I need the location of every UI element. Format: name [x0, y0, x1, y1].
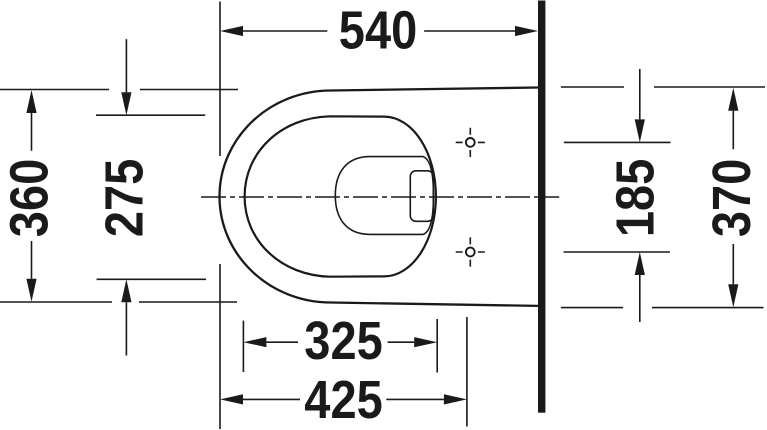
svg-text:540: 540 — [339, 0, 417, 60]
svg-text:360: 360 — [0, 159, 59, 237]
svg-text:275: 275 — [93, 159, 154, 237]
svg-text:185: 185 — [604, 159, 665, 237]
svg-text:325: 325 — [304, 310, 382, 371]
svg-text:425: 425 — [304, 369, 382, 430]
svg-text:370: 370 — [701, 159, 762, 237]
